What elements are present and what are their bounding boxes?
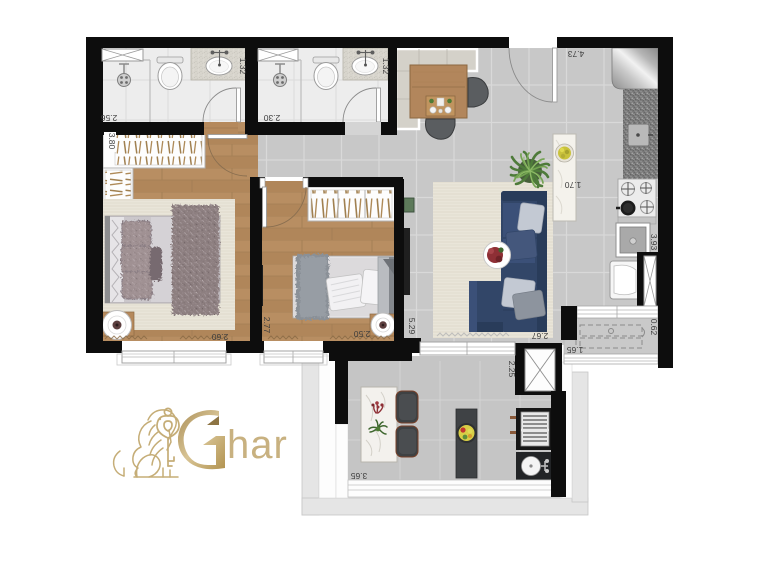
svg-text:4.73: 4.73: [567, 49, 584, 59]
svg-text:2.56: 2.56: [100, 113, 117, 123]
svg-text:har: har: [227, 423, 288, 467]
svg-text:1.32: 1.32: [381, 58, 391, 75]
svg-text:3.65: 3.65: [350, 471, 367, 481]
svg-text:3.80: 3.80: [107, 133, 117, 150]
svg-text:1.32: 1.32: [238, 58, 248, 75]
svg-text:3.93: 3.93: [649, 234, 659, 251]
svg-text:1.70: 1.70: [564, 180, 581, 190]
svg-text:2.77: 2.77: [262, 317, 272, 334]
svg-text:2.50: 2.50: [353, 329, 370, 339]
svg-text:2.67: 2.67: [531, 331, 548, 341]
svg-text:2.30: 2.30: [263, 113, 280, 123]
svg-text:1.65: 1.65: [566, 345, 583, 355]
svg-text:5.29: 5.29: [407, 318, 417, 335]
svg-text:2.60: 2.60: [211, 332, 228, 342]
svg-text:2.25: 2.25: [507, 361, 517, 378]
svg-text:0.62: 0.62: [649, 319, 659, 336]
